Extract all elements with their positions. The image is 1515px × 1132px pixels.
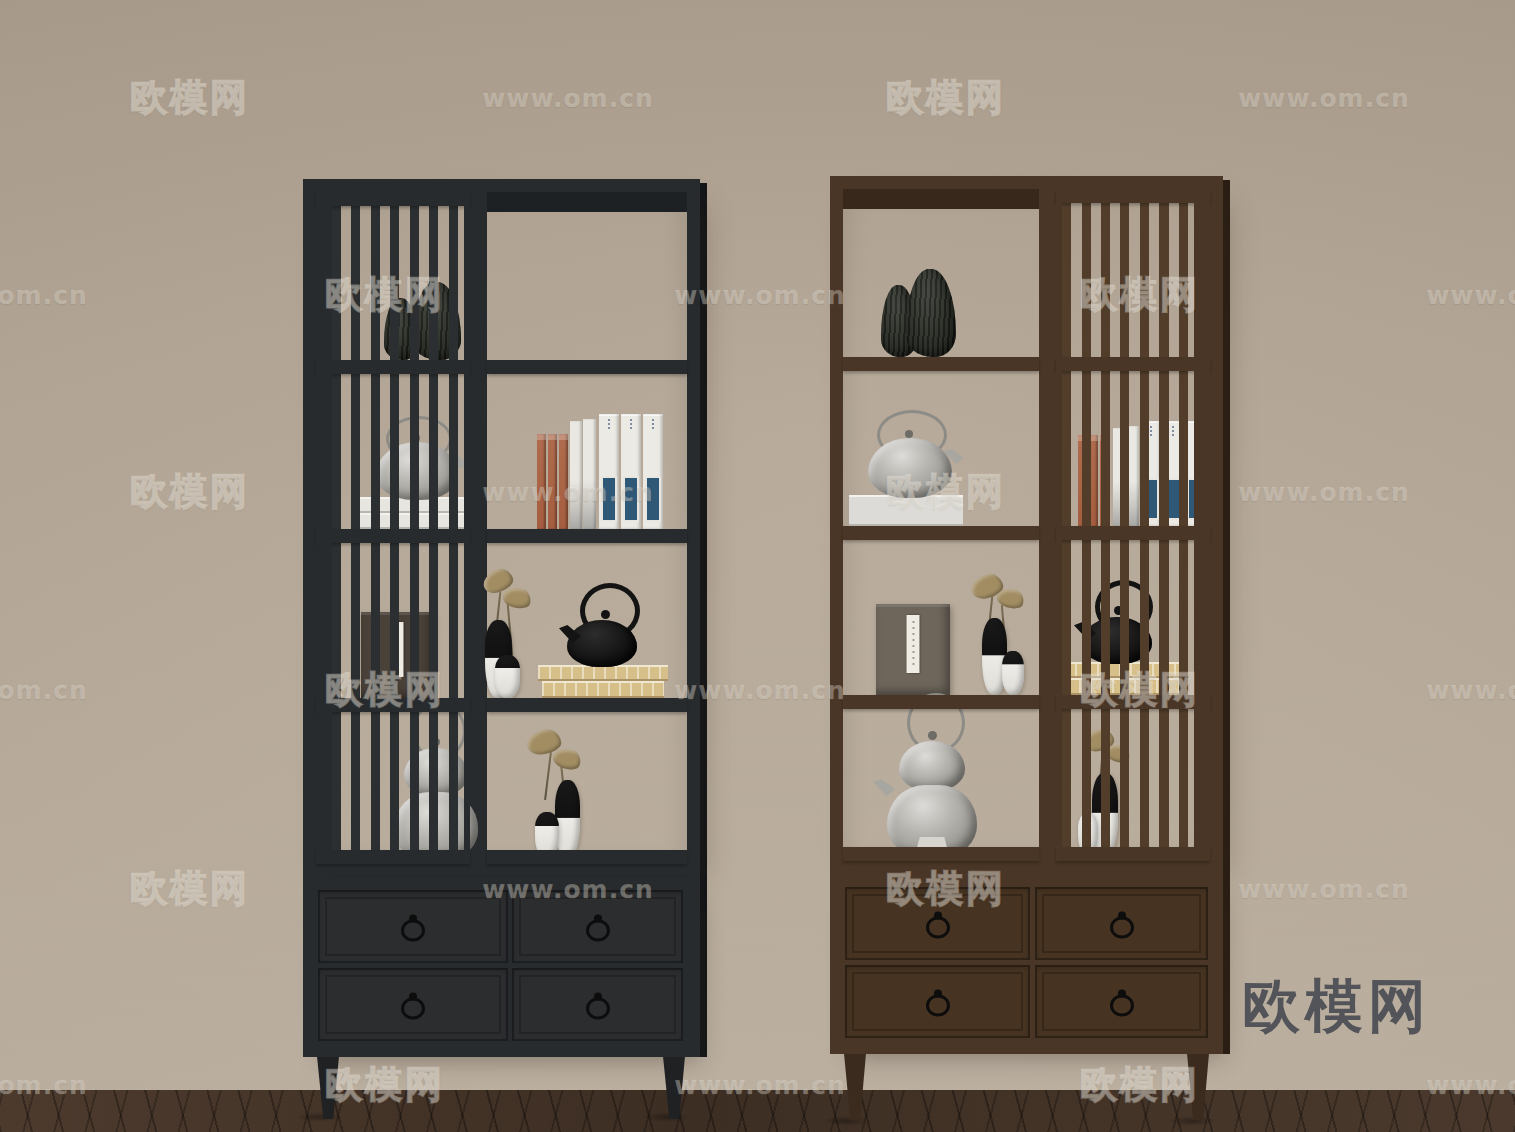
gourd-vase — [1002, 651, 1024, 695]
drawer-section — [303, 877, 700, 1057]
ring-pull — [1110, 994, 1134, 1016]
book-box-label — [907, 615, 920, 673]
slat-door — [1056, 189, 1210, 861]
drawer — [318, 968, 508, 1041]
ring-pull — [1110, 916, 1134, 938]
white-book — [849, 495, 963, 526]
ring-pull — [401, 997, 425, 1019]
gourd-vase — [555, 780, 580, 858]
door-rail — [316, 529, 470, 543]
open-shelves — [487, 192, 687, 864]
drawer — [512, 968, 683, 1041]
top-band — [487, 192, 687, 212]
top-band — [843, 189, 1039, 209]
white-book — [570, 421, 582, 529]
teapot-knob — [928, 731, 937, 740]
black-display-cabinet — [303, 179, 700, 1057]
shelf-board — [487, 698, 687, 712]
shelf-board — [487, 360, 687, 374]
door-rail — [316, 850, 470, 864]
door-stile — [1056, 189, 1062, 861]
drawer — [1035, 887, 1208, 960]
wall — [0, 0, 1515, 1090]
blue-label-book-box — [643, 414, 663, 529]
cabinet-side-panel — [699, 183, 707, 1057]
door-rail — [316, 192, 470, 206]
door-rail — [1056, 526, 1210, 540]
drawer — [845, 887, 1030, 960]
gourd-vase — [495, 655, 520, 698]
lotus-stem — [544, 752, 552, 800]
center-divider — [1039, 189, 1056, 861]
door-rail — [1056, 357, 1210, 371]
orange-book — [559, 434, 568, 529]
leg-shadow — [1168, 1116, 1216, 1126]
teapot-knob — [601, 610, 610, 619]
leg-shadow — [295, 1112, 343, 1122]
slat-door — [316, 192, 470, 864]
door-rail — [1056, 189, 1210, 203]
teapot-spout — [873, 779, 895, 796]
shelf-board — [843, 847, 1039, 861]
display-section — [303, 179, 700, 877]
teapot-knob — [905, 430, 913, 438]
book-box — [876, 604, 950, 695]
drawer — [512, 890, 683, 963]
display-section — [830, 176, 1223, 874]
shelf-board — [843, 695, 1039, 709]
door-rail — [316, 698, 470, 712]
center-divider — [470, 192, 487, 864]
brown-display-cabinet — [830, 176, 1223, 1054]
furniture-render-scene: 欧模网www.om.cn欧模网www.om.cnwww.om.cn欧模网www.… — [0, 0, 1515, 1132]
shelf-board — [487, 850, 687, 864]
ring-pull — [926, 916, 950, 938]
wood-floor — [0, 1090, 1515, 1132]
shelf-board — [487, 529, 687, 543]
leg-shadow — [642, 1112, 690, 1122]
drawer — [1035, 965, 1208, 1038]
cabinet-side-panel — [1222, 180, 1230, 1054]
double-gourd-teapot-top — [899, 741, 965, 791]
door-stile — [464, 192, 470, 864]
door-rail — [1056, 847, 1210, 861]
door-rail — [316, 360, 470, 374]
blue-label-book-box — [599, 414, 619, 529]
orange-book — [548, 434, 557, 529]
ring-pull — [586, 919, 610, 941]
drawer — [318, 890, 508, 963]
drawer-section — [830, 874, 1223, 1054]
cast-iron-teapot — [567, 620, 637, 667]
tan-book — [542, 681, 664, 698]
tan-book — [538, 665, 668, 681]
door-stile — [316, 192, 332, 864]
shelf-board — [843, 526, 1039, 540]
blue-label-book-box — [621, 414, 641, 529]
drawer — [845, 965, 1030, 1038]
leg-shadow — [822, 1116, 870, 1126]
ring-pull — [586, 997, 610, 1019]
white-book — [583, 419, 596, 529]
orange-book — [537, 434, 546, 529]
open-shelves — [843, 189, 1039, 861]
ring-pull — [401, 919, 425, 941]
door-rail — [1056, 695, 1210, 709]
door-stile — [1194, 189, 1210, 861]
ring-pull — [926, 994, 950, 1016]
site-logo: 欧模网 — [1242, 968, 1431, 1046]
shelf-board — [843, 357, 1039, 371]
stone-vase — [906, 269, 956, 357]
silver-teapot — [868, 438, 952, 498]
